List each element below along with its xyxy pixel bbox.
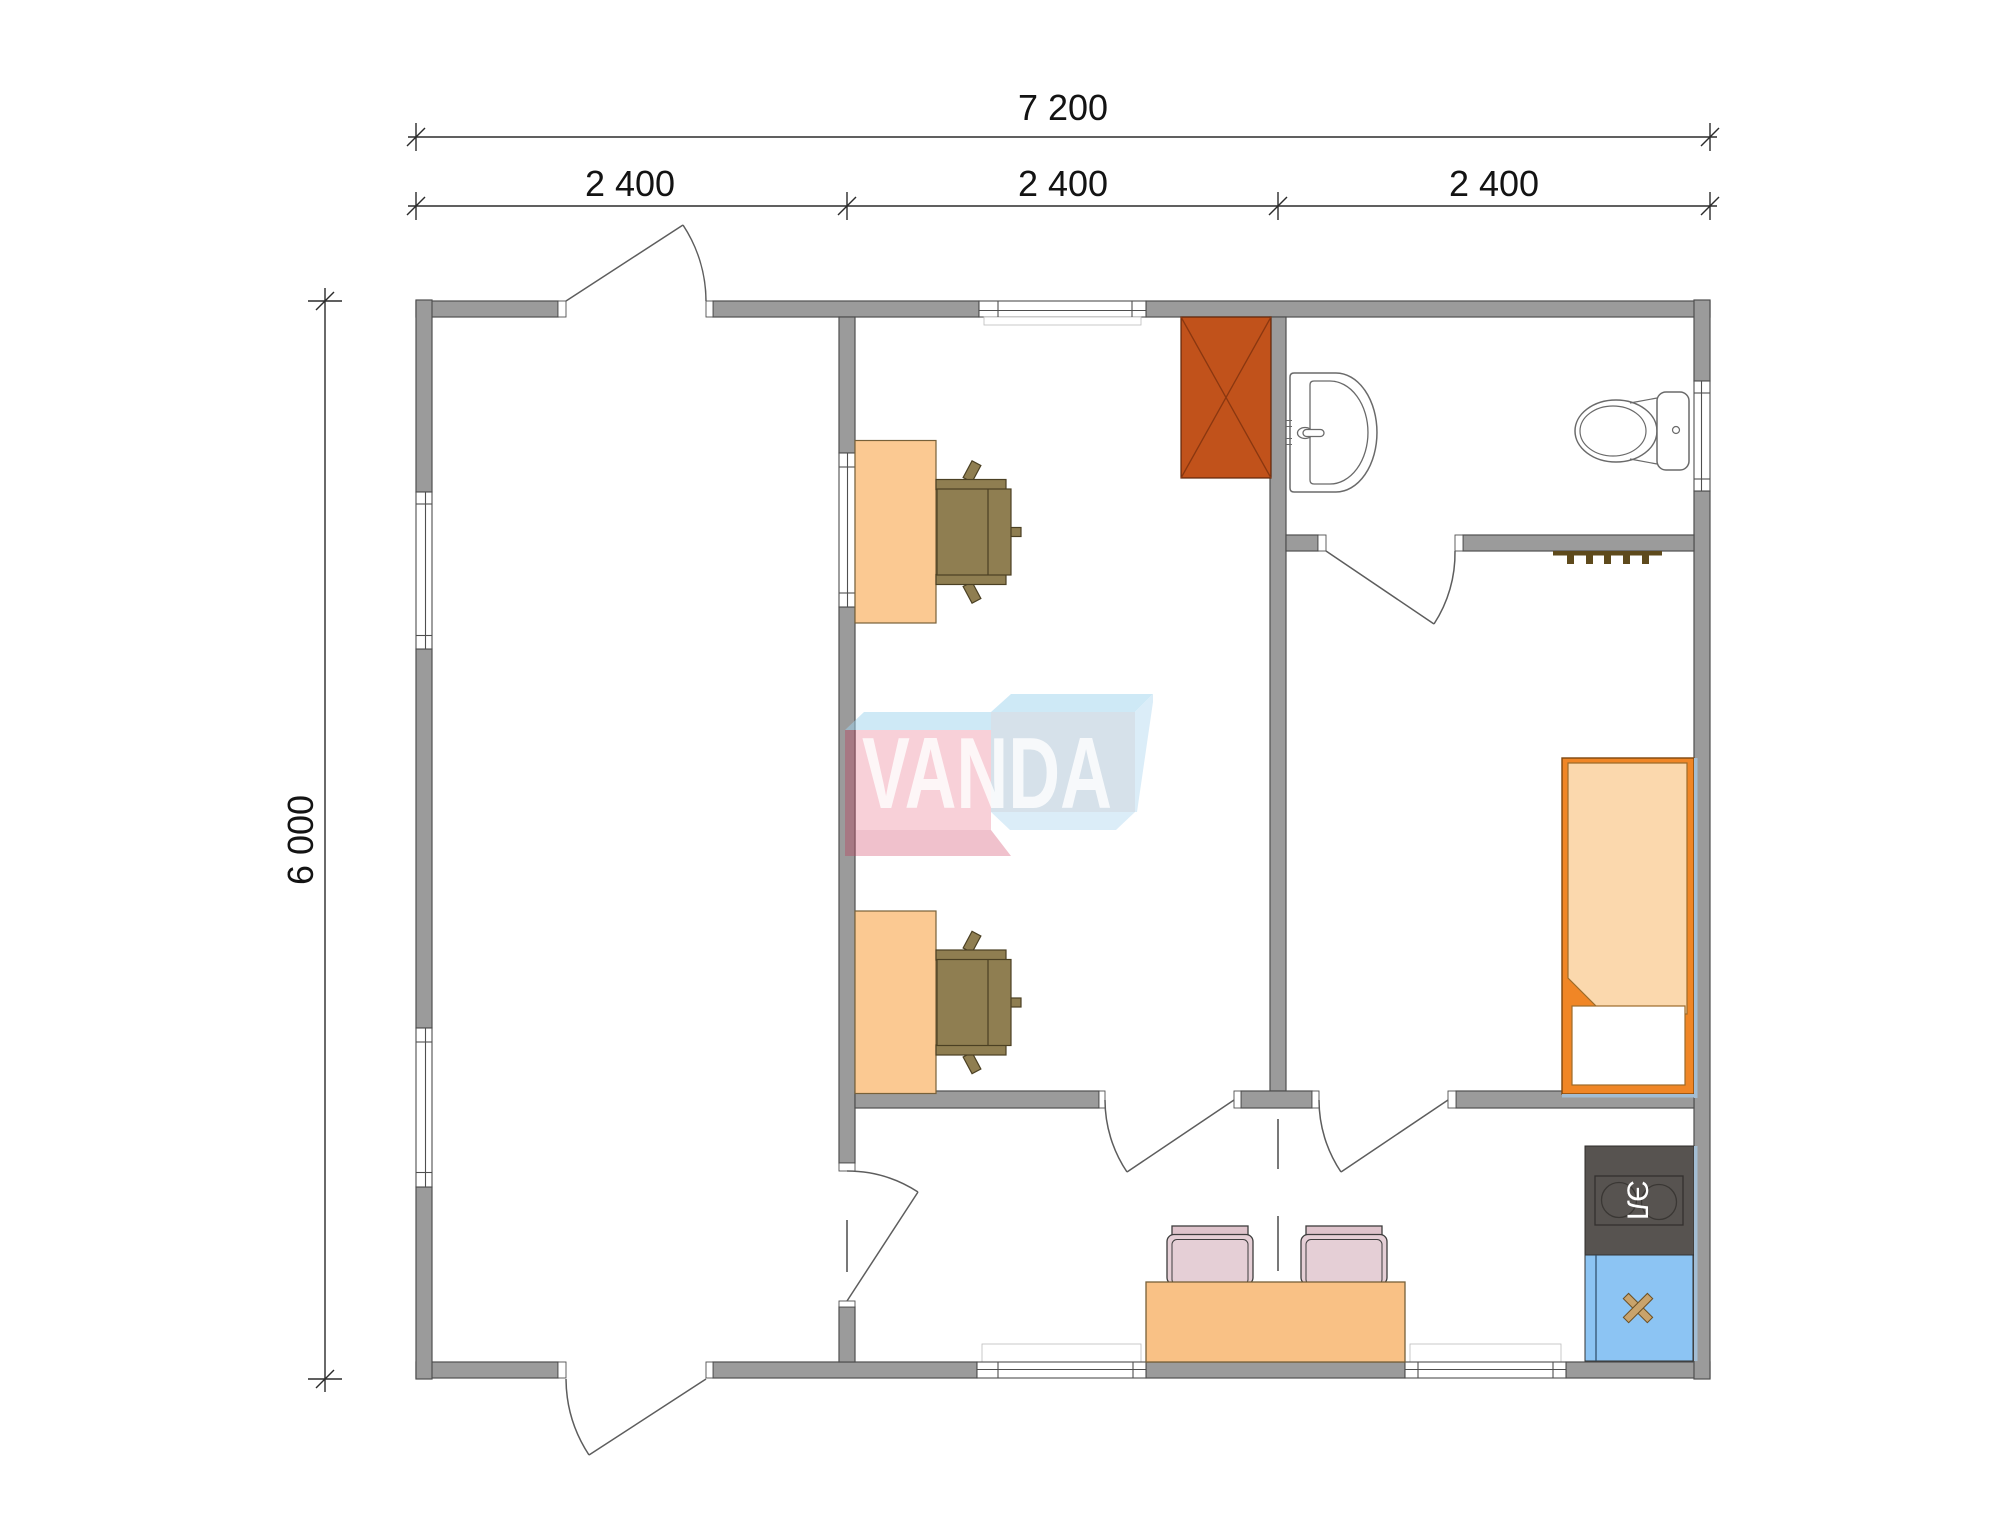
svg-text:7 200: 7 200 — [1018, 87, 1108, 128]
svg-text:2 400: 2 400 — [1449, 163, 1539, 204]
svg-text:2 400: 2 400 — [1018, 163, 1108, 204]
svg-text:ЭЛ: ЭЛ — [1621, 1180, 1654, 1220]
svg-text:2 400: 2 400 — [585, 163, 675, 204]
svg-text:VANDA: VANDA — [862, 718, 1112, 830]
svg-text:6 000: 6 000 — [280, 795, 321, 885]
